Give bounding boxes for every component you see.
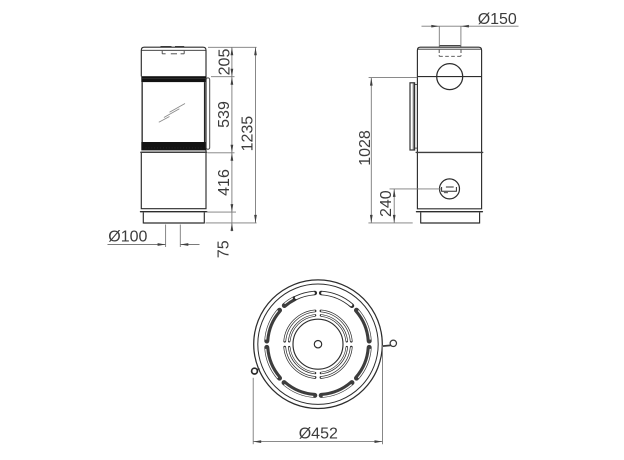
svg-text:416: 416	[216, 169, 233, 196]
svg-text:Ø150: Ø150	[478, 11, 517, 28]
svg-text:539: 539	[216, 101, 233, 128]
svg-text:1235: 1235	[240, 116, 257, 152]
svg-text:240: 240	[378, 190, 395, 217]
svg-text:Ø100: Ø100	[108, 228, 147, 245]
svg-text:205: 205	[216, 49, 233, 76]
svg-text:75: 75	[215, 240, 232, 258]
svg-text:Ø452: Ø452	[299, 426, 338, 443]
svg-text:1028: 1028	[357, 130, 374, 166]
